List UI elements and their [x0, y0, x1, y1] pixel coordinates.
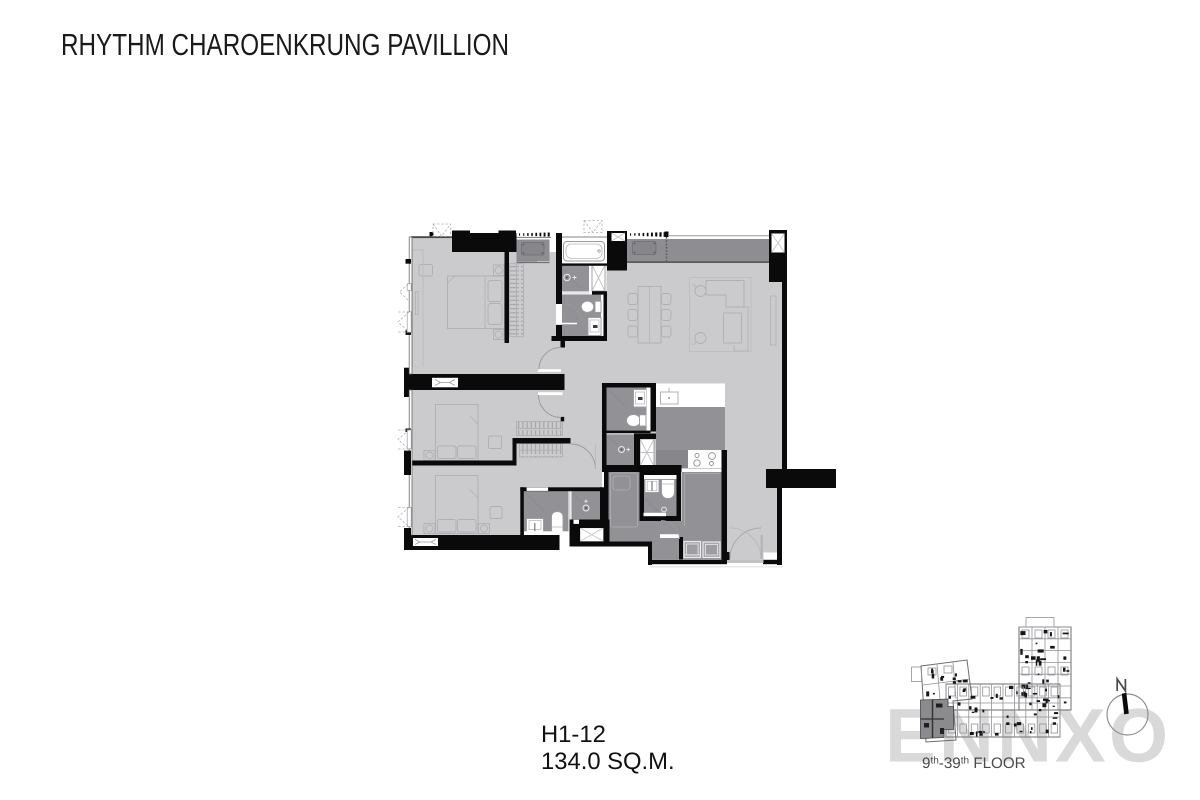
- svg-text:H1-12: H1-12: [541, 721, 606, 748]
- svg-text:RHYTHM CHAROENKRUNG PAVILLION: RHYTHM CHAROENKRUNG PAVILLION: [61, 28, 509, 62]
- svg-text:134.0 SQ.M.: 134.0 SQ.M.: [541, 748, 675, 775]
